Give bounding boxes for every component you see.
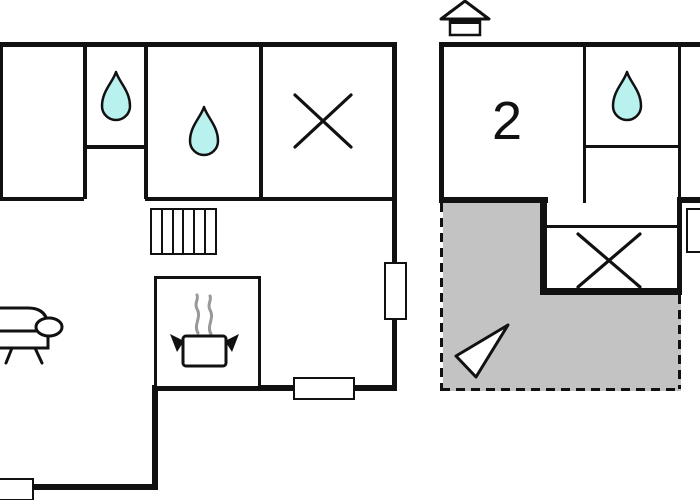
wall-segment: [586, 145, 680, 148]
wall-segment: [259, 47, 263, 199]
wall-segment: [83, 47, 87, 199]
water-drop-icon: [102, 72, 130, 120]
stair-step: [184, 210, 195, 253]
symbols-overlay: [0, 0, 700, 500]
window: [384, 262, 407, 320]
wall-segment: [540, 197, 547, 294]
x-marker-icon: [295, 95, 351, 147]
wall-segment: [583, 47, 586, 203]
wall-segment: [152, 385, 158, 490]
x-marker-icon: [578, 234, 640, 287]
stair-step: [174, 210, 185, 253]
kitchen-room: [154, 276, 261, 389]
stairs-icon: [150, 208, 217, 255]
stair-step: [195, 210, 206, 253]
house-entrance-icon: [441, 1, 489, 35]
wall-segment: [439, 197, 548, 203]
terrace-area: [443, 295, 681, 391]
wall-segment: [677, 197, 682, 295]
wall-segment: [0, 197, 84, 201]
stair-step: [206, 210, 215, 253]
floor-plan: 2: [0, 0, 700, 500]
bedroom-bed-count: 2: [480, 97, 534, 145]
wall-segment: [145, 197, 397, 201]
wall-segment: [83, 145, 148, 149]
wall-segment: [0, 42, 397, 47]
water-drop-icon: [190, 107, 218, 155]
stair-step: [152, 210, 163, 253]
sofa-icon: [0, 308, 62, 363]
wall-segment: [439, 42, 700, 47]
wall-segment: [144, 47, 148, 199]
wall-segment: [540, 288, 682, 295]
wall-segment: [0, 42, 3, 201]
window: [0, 478, 34, 500]
water-drop-icon: [613, 72, 641, 120]
window: [686, 208, 700, 253]
wall-segment: [547, 225, 678, 228]
window: [293, 377, 355, 400]
stair-step: [163, 210, 174, 253]
wall-segment: [439, 42, 444, 203]
wall-segment: [678, 42, 681, 197]
wall-segment: [392, 42, 397, 390]
wall-segment: [678, 197, 700, 203]
